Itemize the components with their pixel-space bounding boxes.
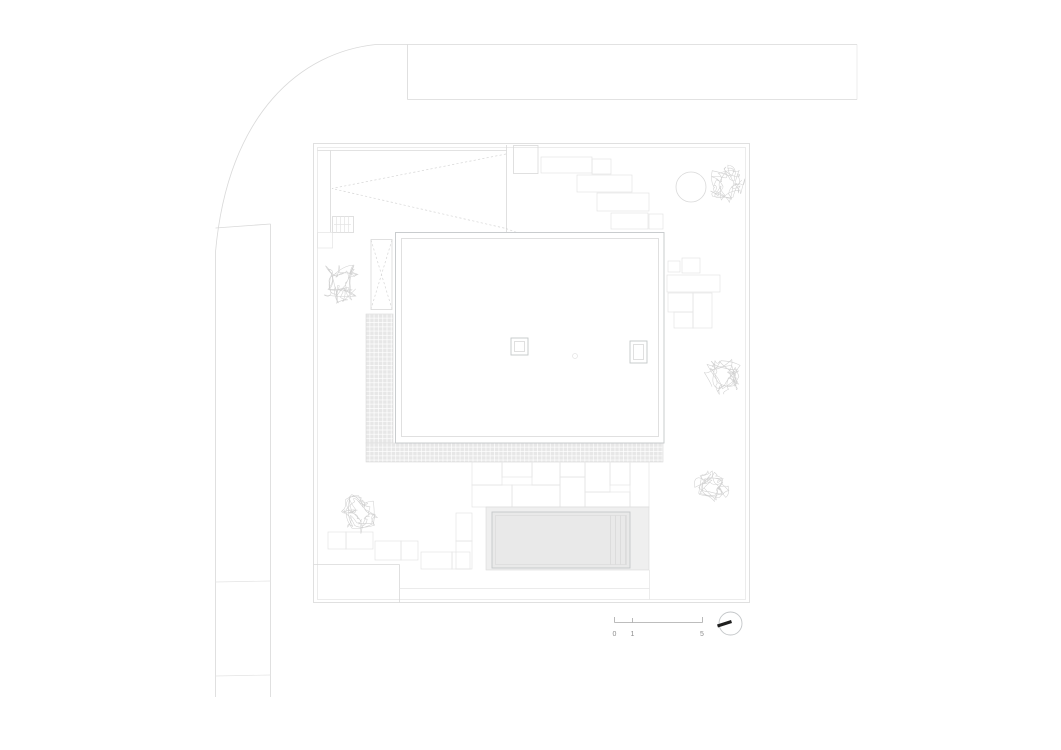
site-plan-canvas: 0 1 5: [0, 0, 1061, 750]
tree-canopy: [711, 165, 745, 202]
paver-slab: [456, 541, 472, 569]
paver-slab: [532, 462, 560, 485]
north-indicator: [718, 612, 743, 635]
paver-slab: [472, 485, 512, 507]
paver-slab: [421, 552, 452, 569]
paver-slab: [512, 485, 560, 507]
building-roof: [396, 233, 665, 444]
pool-basin: [492, 512, 630, 568]
round-planter: [676, 172, 706, 202]
tree-canopy: [342, 495, 378, 534]
paver-slab: [592, 159, 611, 174]
paver-slab: [375, 541, 401, 560]
paver-slab: [502, 462, 532, 477]
pergola-bracing: [371, 240, 392, 309]
road-corner-curve: [216, 45, 377, 698]
tile-strip-horizontal: [366, 443, 663, 462]
paver-slab: [560, 462, 585, 477]
scale-label-5: 5: [700, 631, 704, 638]
paver-slab: [668, 261, 680, 272]
paver-path-bottom-left: [328, 532, 470, 569]
paver-slab: [401, 541, 418, 560]
paver-slab: [585, 462, 610, 492]
tree-canopy: [704, 360, 740, 395]
paver-slab: [456, 513, 472, 541]
scale-label-1: 1: [631, 631, 635, 638]
scale-bar-line: [615, 617, 703, 623]
paver-slab: [674, 312, 693, 328]
paver-slab: [597, 193, 649, 211]
paver-slab: [610, 462, 630, 485]
paver-slab: [541, 157, 592, 173]
entry-stair: [333, 217, 354, 233]
tile-strip-vertical: [366, 314, 393, 443]
sidewalk-joint: [216, 675, 271, 676]
scale-label-0: 0: [613, 631, 617, 638]
ramp-slope-line: [332, 154, 506, 229]
paver-slab: [630, 462, 649, 507]
roof-outline: [396, 233, 665, 444]
tree-canopy: [694, 471, 728, 502]
paver-slab: [611, 213, 648, 229]
paver-slab: [668, 293, 693, 312]
site-plan-drawing: 0 1 5: [0, 0, 1061, 750]
paver-slab: [452, 552, 470, 569]
pergola: [371, 240, 392, 310]
paver-path-top: [541, 157, 663, 229]
paver-slab: [682, 258, 700, 273]
paver-slab: [560, 477, 585, 507]
entry-gate: [514, 146, 539, 174]
paver-slab: [649, 214, 663, 229]
sidewalk-top-edge: [216, 224, 271, 228]
sidewalk-joint: [216, 581, 271, 582]
paver-slab: [693, 293, 712, 328]
tree-canopy: [324, 265, 358, 303]
paver-path-right: [667, 258, 720, 328]
paver-slab: [667, 275, 720, 292]
scale-bar: 0 1 5: [613, 617, 705, 638]
paver-slab: [577, 175, 632, 192]
landing-slab: [318, 233, 333, 249]
paver-slab: [472, 462, 502, 485]
paver-slab: [585, 492, 630, 507]
paver-slab: [328, 532, 346, 549]
paver-slab: [346, 532, 373, 549]
swimming-pool: [486, 507, 649, 570]
